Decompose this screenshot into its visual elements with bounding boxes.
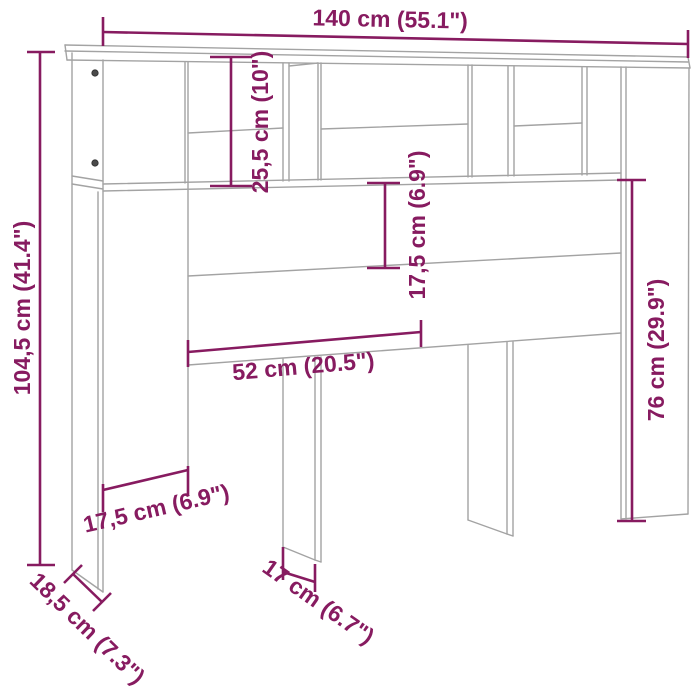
top-board bbox=[65, 45, 690, 68]
top-shelf-band bbox=[103, 173, 621, 191]
dim-total-width-label: 140 cm (55.1") bbox=[312, 4, 468, 33]
center-left-leg bbox=[283, 357, 321, 562]
divider-d bbox=[508, 66, 514, 176]
dim-total-width: 140 cm (55.1") bbox=[103, 4, 688, 58]
center-right-leg bbox=[468, 342, 513, 536]
headboard-dimension-drawing: 140 cm (55.1") 104,5 cm (41.4") 25,5 cm … bbox=[0, 0, 700, 700]
dim-top-shelf-height: 25,5 cm (10") bbox=[210, 51, 273, 194]
dim-top-shelf-height-label: 25,5 cm (10") bbox=[247, 51, 273, 194]
divider-e bbox=[582, 67, 587, 175]
dim-left-leg-depth-label: 18,5 cm (7.3") bbox=[25, 567, 150, 689]
dim-total-height: 104,5 cm (41.4") bbox=[9, 52, 55, 565]
dim-left-leg-depth: 18,5 cm (7.3") bbox=[25, 565, 150, 689]
dim-center-leg-depth-label: 17 cm (6.7") bbox=[258, 554, 379, 650]
dim-right-height-label: 76 cm (29.9") bbox=[643, 279, 669, 422]
dim-panel-height-label: 17,5 cm (6.9") bbox=[404, 151, 430, 300]
dim-opening-width-label: 52 cm (20.5") bbox=[231, 347, 375, 385]
dim-right-height: 76 cm (29.9") bbox=[617, 180, 669, 521]
compartment-3 bbox=[514, 123, 582, 126]
dimension-annotations: 140 cm (55.1") 104,5 cm (41.4") 25,5 cm … bbox=[9, 4, 688, 689]
screw-icon bbox=[92, 160, 98, 166]
dim-total-height-label: 104,5 cm (41.4") bbox=[9, 221, 35, 396]
divider-c bbox=[468, 65, 472, 177]
inner-left-divider bbox=[185, 62, 188, 468]
compartment-2 bbox=[321, 124, 468, 129]
dim-center-leg-depth: 17 cm (6.7") bbox=[258, 547, 379, 649]
dim-panel-height: 17,5 cm (6.9") bbox=[367, 151, 430, 300]
dimension-diagram: 140 cm (55.1") 104,5 cm (41.4") 25,5 cm … bbox=[0, 0, 700, 700]
screw-icon bbox=[92, 70, 98, 76]
dim-opening-width: 52 cm (20.5") bbox=[188, 320, 421, 385]
divider-b bbox=[283, 63, 321, 181]
